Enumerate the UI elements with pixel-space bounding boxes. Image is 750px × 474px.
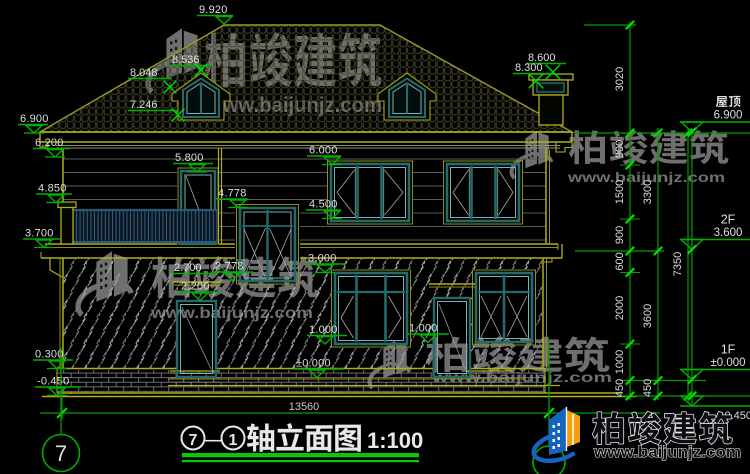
svg-text:600: 600 [614, 252, 626, 270]
svg-text:3600: 3600 [642, 304, 654, 328]
svg-text:900: 900 [614, 140, 626, 158]
svg-text:6.200: 6.200 [35, 137, 64, 149]
svg-text:6.000: 6.000 [309, 145, 338, 157]
svg-text:1F: 1F [721, 343, 736, 357]
svg-text:-0.450: -0.450 [37, 376, 69, 388]
svg-text:1000: 1000 [614, 350, 626, 374]
svg-text:7350: 7350 [672, 252, 684, 276]
svg-text:±0.000: ±0.000 [710, 357, 745, 369]
svg-text:0.300: 0.300 [35, 349, 64, 361]
svg-text:±0.000: ±0.000 [296, 358, 331, 370]
svg-text:450: 450 [642, 379, 654, 397]
svg-text:1500: 1500 [614, 180, 626, 204]
svg-text:900: 900 [614, 226, 626, 244]
svg-text:2F: 2F [721, 213, 736, 227]
svg-text:9.920: 9.920 [199, 4, 228, 16]
svg-text:4.778: 4.778 [218, 188, 247, 200]
svg-text:8.048: 8.048 [130, 67, 158, 79]
svg-text:7.246: 7.246 [130, 99, 158, 111]
svg-text:7: 7 [55, 441, 67, 466]
svg-text:1: 1 [229, 432, 238, 449]
svg-text:5.800: 5.800 [175, 152, 204, 164]
svg-text:3.000: 3.000 [308, 253, 337, 265]
svg-text:2.778: 2.778 [215, 261, 244, 273]
svg-text:450: 450 [614, 379, 626, 397]
svg-text:6.900: 6.900 [20, 113, 49, 125]
svg-text:3.600: 3.600 [714, 227, 743, 239]
svg-text:1:100: 1:100 [367, 428, 423, 453]
svg-text:3300: 3300 [642, 180, 654, 204]
svg-text:3.700: 3.700 [25, 228, 54, 240]
svg-text:2.700: 2.700 [174, 262, 202, 274]
svg-text:2000: 2000 [614, 296, 626, 320]
svg-text:1.000: 1.000 [309, 324, 338, 336]
svg-text:4.850: 4.850 [38, 183, 67, 195]
svg-text:www.baijunjz.com: www.baijunjz.com [593, 444, 741, 461]
svg-text:1.000: 1.000 [409, 323, 438, 335]
svg-text:2.200: 2.200 [181, 281, 210, 293]
svg-text:4.500: 4.500 [309, 199, 338, 211]
svg-text:3020: 3020 [614, 67, 626, 91]
svg-text:—: — [205, 432, 221, 449]
svg-text:8.300: 8.300 [515, 62, 543, 74]
svg-text:7: 7 [189, 432, 198, 449]
svg-text:6.900: 6.900 [714, 110, 743, 122]
svg-text:13560: 13560 [289, 401, 320, 413]
